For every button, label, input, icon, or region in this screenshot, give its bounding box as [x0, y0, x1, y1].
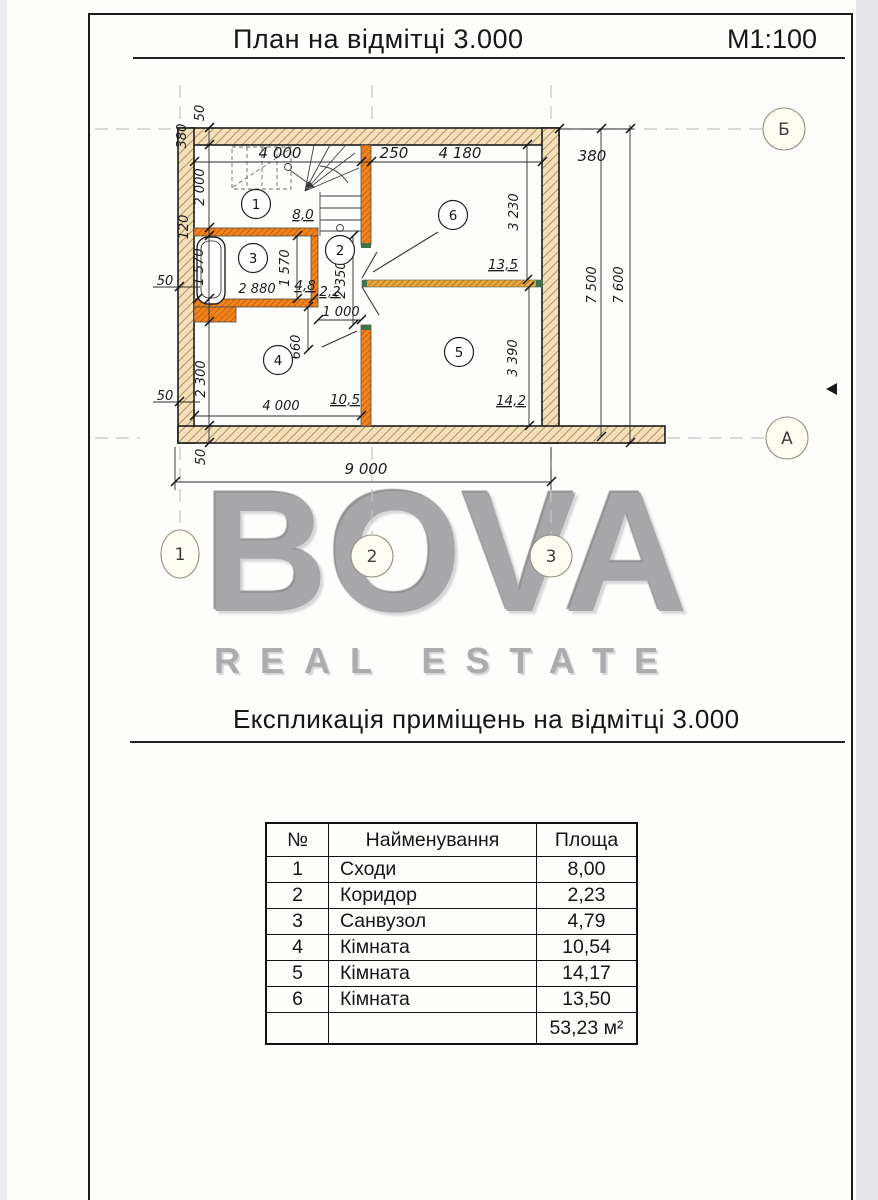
axis-bubble-1: 1: [161, 530, 199, 578]
svg-text:6: 6: [449, 208, 458, 224]
svg-text:5: 5: [455, 345, 464, 361]
scan-edge-left: [0, 0, 7, 1200]
table-row-area: 10,54: [537, 935, 636, 961]
door-frame-cap: [361, 325, 371, 330]
svg-text:2: 2: [336, 243, 345, 259]
area-room4: 10,5: [330, 392, 360, 408]
watermark-realestate-text: REAL ESTATE: [214, 640, 688, 682]
table-row-area: 2,23: [537, 883, 636, 909]
watermark-logo: BOVA REAL ESTATE: [204, 466, 688, 682]
table-row-name: Кімната: [329, 935, 537, 961]
area-room2: 2,2: [319, 284, 340, 300]
sheet-frame-right: [851, 13, 853, 1200]
area-room3: 4,8: [294, 278, 315, 294]
table-total-empty: [329, 1013, 537, 1043]
dim-in-1570: 1 570: [278, 249, 293, 286]
dimension-labels: 4 000 250 4 180 380 7 500 7 600 50 380 2…: [157, 105, 627, 478]
area-room6: 13,5: [488, 257, 518, 273]
area-room1: 8,0: [292, 207, 313, 223]
room-circle-1: 1: [242, 190, 271, 219]
dim-topright-380: 380: [578, 147, 607, 165]
sheet-frame-top: [88, 13, 853, 15]
room-area-labels: 8,0 2,2 4,8 10,5 14,2 13,5: [292, 207, 526, 409]
table-row-number: 4: [267, 935, 329, 961]
room-circle-3: 3: [239, 244, 268, 273]
axis-bubble-b: Б: [763, 108, 805, 150]
room-circle-2: 2: [326, 236, 355, 265]
dim-top-4180: 4 180: [439, 144, 482, 162]
dimension-ticks: [171, 123, 635, 486]
table-total-area: 53,23 м²: [537, 1013, 636, 1043]
door-frame-cap: [536, 280, 542, 287]
room-circle-5: 5: [445, 338, 474, 367]
room-number-circles: 1 2 3 4 5 6: [239, 190, 474, 375]
room-circle-4: 4: [264, 346, 293, 375]
title-underline: [133, 57, 845, 59]
scan-edge-right: [856, 0, 878, 1200]
svg-text:А: А: [781, 429, 793, 449]
table-row-name: Кімната: [329, 987, 537, 1013]
dim-in-2350: 2 350: [334, 261, 349, 298]
dim-left-50-top: 50: [193, 105, 208, 122]
area-room5: 14,2: [496, 393, 526, 409]
dim-in-3390: 3 390: [506, 339, 521, 376]
svg-text:Б: Б: [778, 120, 790, 140]
svg-text:3: 3: [249, 251, 258, 267]
sheet-frame-left: [88, 13, 90, 1200]
watermark-bova-text: BOVA: [204, 466, 688, 638]
table-row-name: Коридор: [329, 883, 537, 909]
dim-top-250: 250: [380, 144, 409, 162]
table-header-name: Найменування: [329, 824, 537, 857]
dim-top-4000: 4 000: [259, 144, 302, 162]
table-row-area: 4,79: [537, 909, 636, 935]
table-header-number: №: [267, 824, 329, 857]
dim-right-7600: 7 600: [612, 266, 627, 303]
table-row-number: 6: [267, 987, 329, 1013]
stair-end-marker: [337, 225, 344, 232]
axis-bubble-a: А: [766, 417, 808, 459]
dim-left-50-mid: 50: [157, 274, 174, 289]
door-frame-cap: [362, 280, 367, 287]
dim-in-2880: 2 880: [238, 282, 275, 297]
room-circle-6: 6: [439, 201, 468, 230]
door-frame-cap: [361, 243, 371, 248]
dim-left-50-low: 50: [157, 389, 174, 404]
drawing-sheet: План на відмітці 3.000 М1:100 BOVA REAL …: [0, 0, 878, 1200]
table-row-name: Кімната: [329, 961, 537, 987]
table-header-area: Площа: [537, 824, 636, 857]
dim-left-380: 380: [175, 124, 190, 149]
table-row-number: 3: [267, 909, 329, 935]
dim-left-2000: 2 000: [193, 168, 208, 205]
table-row-area: 14,17: [537, 961, 636, 987]
explication-table: № Найменування Площа 1 Сходи 8,00 2 Кори…: [265, 822, 638, 1045]
dim-right-7500: 7 500: [585, 266, 600, 303]
plan-scale: М1:100: [727, 24, 817, 55]
table-row-number: 5: [267, 961, 329, 987]
dim-left-2300: 2 300: [194, 360, 209, 397]
explication-underline: [130, 741, 845, 743]
table-row-area: 13,50: [537, 987, 636, 1013]
dim-in-1000: 1 000: [322, 305, 359, 320]
dim-in-660: 660: [289, 335, 304, 360]
dim-in-4000: 4 000: [262, 399, 299, 414]
dim-left-1570: 1 570: [192, 248, 207, 285]
partition-walls: [194, 145, 542, 426]
door-swings: [322, 232, 438, 347]
table-row-number: 1: [267, 857, 329, 883]
svg-text:1: 1: [175, 545, 186, 565]
table-row-name: Санвузол: [329, 909, 537, 935]
dim-left-120: 120: [177, 215, 192, 240]
dim-in-3230: 3 230: [507, 193, 522, 230]
mouse-cursor-icon: [826, 383, 837, 395]
svg-text:4: 4: [274, 353, 283, 369]
outer-walls: [178, 128, 665, 443]
bathtub: [197, 237, 225, 304]
table-row-area: 8,00: [537, 857, 636, 883]
dimension-lines: [153, 125, 634, 490]
table-total-empty: [267, 1013, 329, 1043]
plan-title: План на відмітці 3.000: [233, 24, 524, 55]
table-row-number: 2: [267, 883, 329, 909]
stair-start-marker: [285, 164, 292, 171]
stair-direction-arrow: [305, 181, 315, 188]
svg-text:1: 1: [252, 197, 261, 213]
table-row-name: Сходи: [329, 857, 537, 883]
explication-title: Експликація приміщень на відмітці 3.000: [233, 704, 739, 735]
staircase: [232, 145, 361, 236]
